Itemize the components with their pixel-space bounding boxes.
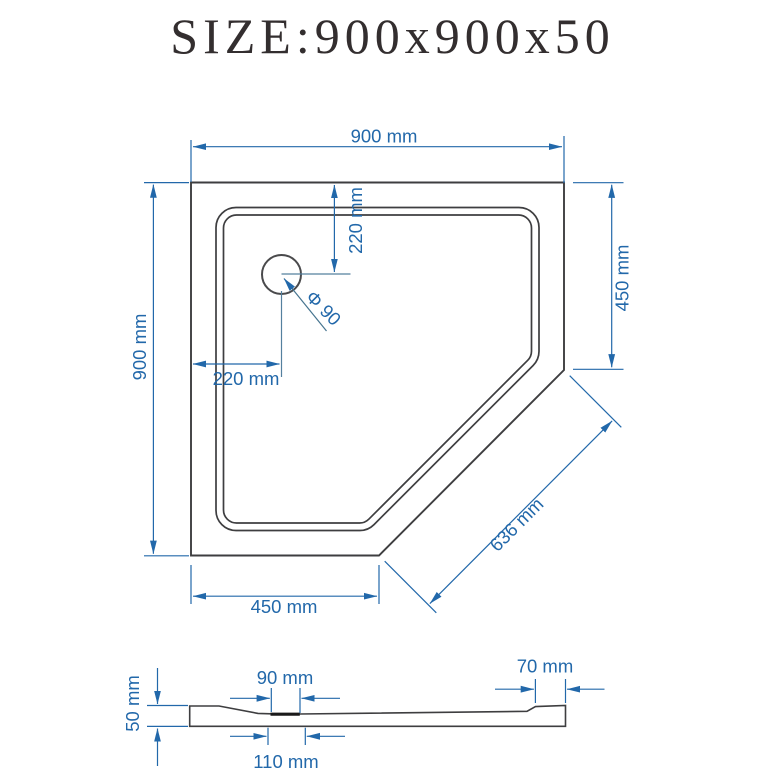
svg-text:450 mm: 450 mm bbox=[251, 596, 318, 617]
svg-text:900 mm: 900 mm bbox=[129, 314, 150, 381]
svg-text:110 mm: 110 mm bbox=[253, 751, 318, 772]
svg-text:220 mm: 220 mm bbox=[213, 368, 280, 389]
svg-text:220 mm: 220 mm bbox=[345, 187, 366, 254]
svg-text:70 mm: 70 mm bbox=[517, 656, 574, 677]
svg-text:50 mm: 50 mm bbox=[122, 675, 143, 732]
svg-text:SIZE:900x900x50: SIZE:900x900x50 bbox=[170, 8, 614, 64]
svg-text:90 mm: 90 mm bbox=[257, 667, 314, 688]
svg-text:450 mm: 450 mm bbox=[612, 245, 633, 312]
svg-text:900 mm: 900 mm bbox=[351, 126, 418, 147]
